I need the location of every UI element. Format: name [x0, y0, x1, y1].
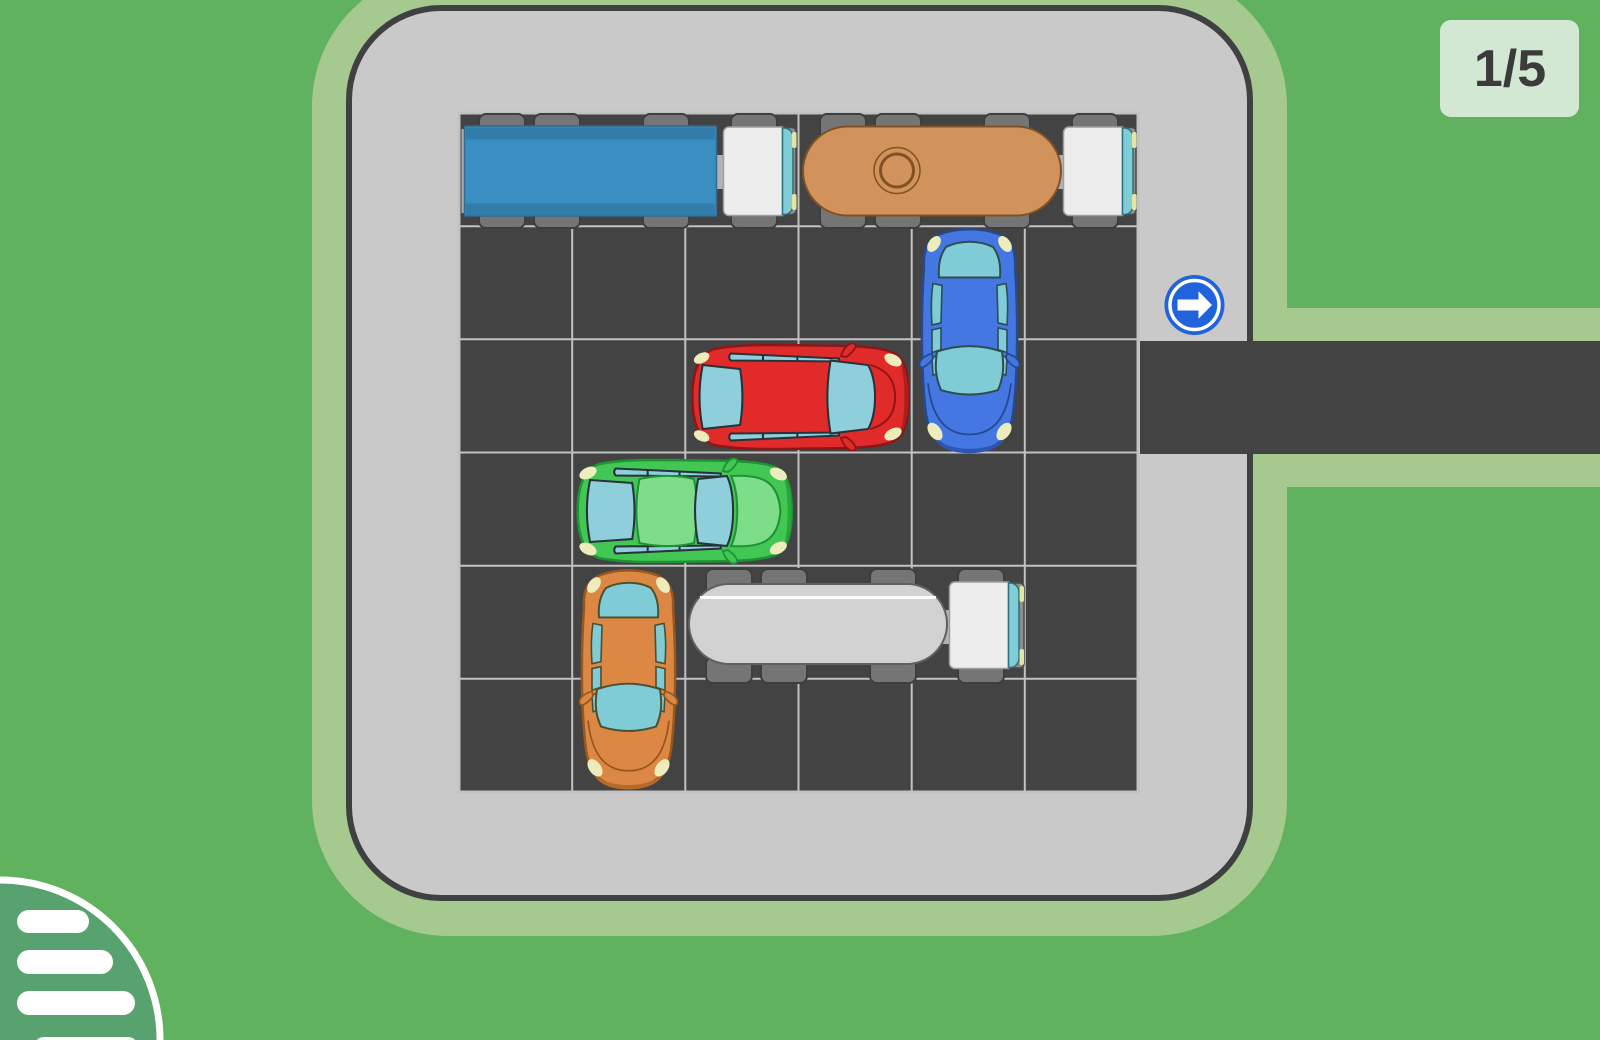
- svg-text:1/5: 1/5: [1474, 40, 1546, 98]
